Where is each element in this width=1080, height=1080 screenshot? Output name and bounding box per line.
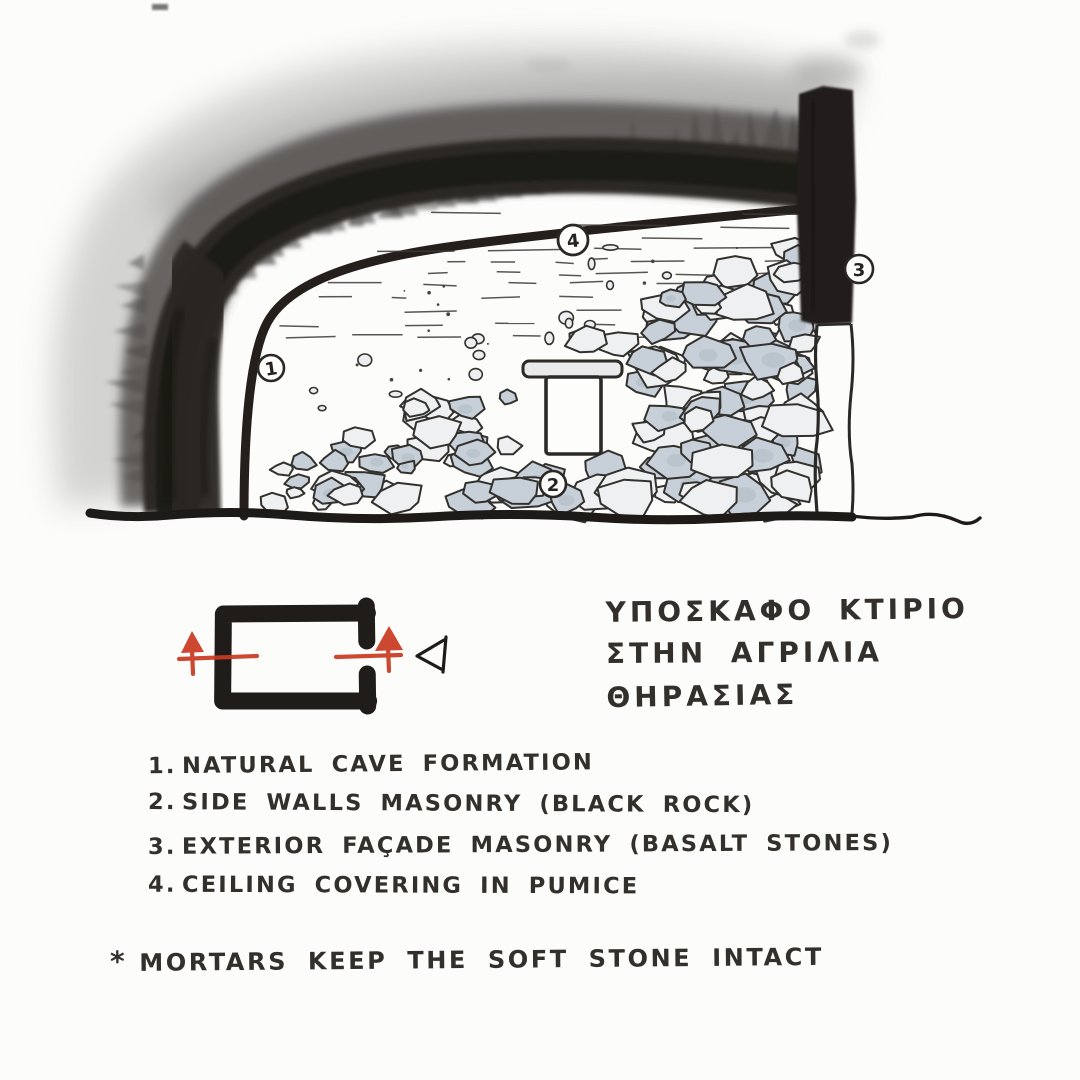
callout-2: 2 xyxy=(540,471,566,497)
legend-item-3-text: EXTERIOR FAÇADE MASONRY (BASALT STONES) xyxy=(182,830,893,860)
greek-title-line-2: ΣΤΗΝ ΑΓΡΙΛΙΑ xyxy=(606,631,970,675)
plan-diagram xyxy=(140,560,480,750)
view-direction-eye-icon xyxy=(417,637,446,672)
callout-4: 4 xyxy=(558,225,588,255)
legend-item-3-number: 3. xyxy=(148,834,182,860)
section-arrow-left-tail xyxy=(192,649,193,674)
section-arrow-left-head xyxy=(181,631,204,653)
callout-3-number: 3 xyxy=(853,260,866,281)
footnote-text: MORTARS KEEP THE SOFT STONE INTACT xyxy=(139,943,824,977)
legend-item-3: 3. EXTERIOR FAÇADE MASONRY (BASALT STONE… xyxy=(148,830,893,860)
legend-item-1: 1. NATURAL CAVE FORMATION xyxy=(148,747,893,780)
greek-title: ΥΠΟΣΚΑΦΟ ΚΤΙΡΙΟ ΣΤΗΝ ΑΓΡΙΛΙΑ ΘΗΡΑΣΙΑΣ xyxy=(605,588,970,718)
callout-2-number: 2 xyxy=(547,475,560,496)
legend-item-4-number: 4. xyxy=(148,872,182,898)
legend-item-2: 2. SIDE WALLS MASONRY (BLACK ROCK) xyxy=(148,789,893,819)
footnote: * MORTARS KEEP THE SOFT STONE INTACT xyxy=(110,939,824,978)
legend: 1. NATURAL CAVE FORMATION 2. SIDE WALLS … xyxy=(148,750,893,899)
legend-item-4: 4. CEILING COVERING IN PUMICE xyxy=(148,872,893,901)
section-arrow-right-head xyxy=(375,626,403,651)
legend-item-4-text: CEILING COVERING IN PUMICE xyxy=(182,872,639,900)
ground-line xyxy=(90,513,980,524)
legend-item-2-text: SIDE WALLS MASONRY (BLACK ROCK) xyxy=(182,789,755,818)
asterisk-icon: * xyxy=(110,945,128,978)
callout-4-number: 4 xyxy=(566,230,581,252)
greek-title-line-1: ΥΠΟΣΚΑΦΟ ΚΤΙΡΙΟ xyxy=(605,588,969,634)
section-arrow-right-tail xyxy=(388,647,389,671)
basalt-facade-band xyxy=(791,55,863,325)
legend-item-1-number: 1. xyxy=(148,753,182,779)
section-line-right xyxy=(336,655,401,657)
callout-3: 3 xyxy=(845,255,873,283)
legend-item-1-text: NATURAL CAVE FORMATION xyxy=(182,749,594,779)
sketch-page: 1 2 3 4 xyxy=(0,0,1080,1080)
cave-section-drawing: 1 2 3 4 xyxy=(0,0,1080,560)
legend-item-2-number: 2. xyxy=(148,789,182,815)
greek-title-line-3: ΘΗΡΑΣΙΑΣ xyxy=(606,671,970,719)
callout-1: 1 xyxy=(258,355,284,381)
